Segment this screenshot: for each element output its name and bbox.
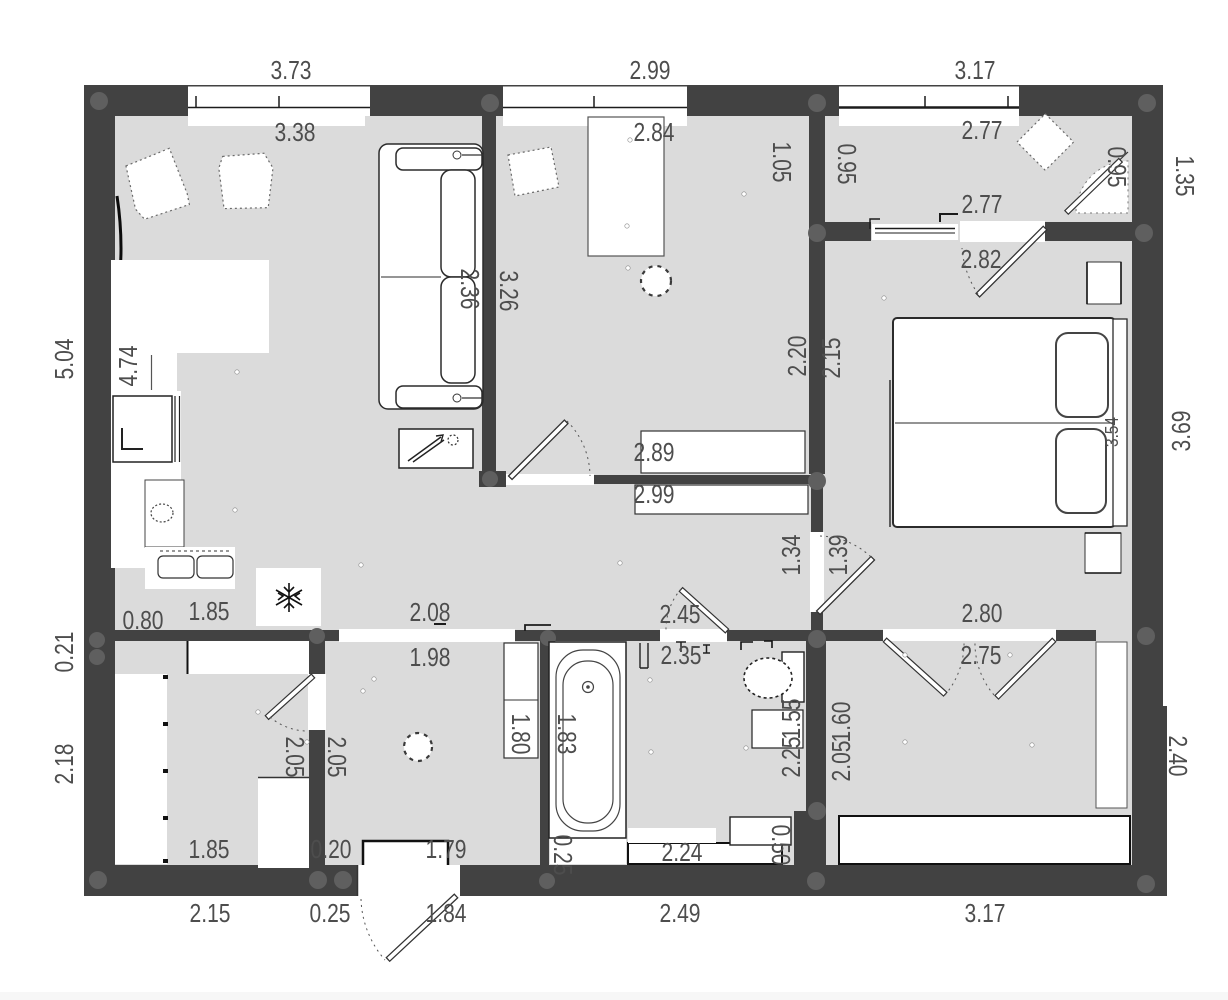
svg-text:1.83: 1.83 — [552, 714, 582, 755]
svg-text:2.84: 2.84 — [634, 117, 675, 147]
svg-text:2.05: 2.05 — [280, 737, 310, 778]
svg-text:2.24: 2.24 — [662, 837, 703, 867]
svg-text:3.54: 3.54 — [1102, 417, 1122, 447]
svg-text:4.74: 4.74 — [113, 346, 143, 387]
svg-text:1.34: 1.34 — [776, 535, 806, 576]
svg-text:2.18: 2.18 — [49, 744, 79, 785]
svg-text:0.95: 0.95 — [832, 144, 862, 185]
svg-text:2.05: 2.05 — [826, 741, 856, 782]
svg-text:1.98: 1.98 — [410, 642, 451, 672]
svg-text:3.17: 3.17 — [965, 898, 1006, 928]
svg-text:0.25: 0.25 — [548, 835, 578, 876]
svg-text:2.20: 2.20 — [782, 336, 812, 377]
svg-text:1.79: 1.79 — [426, 834, 467, 864]
svg-text:1.80: 1.80 — [506, 714, 536, 755]
svg-text:2.05: 2.05 — [322, 737, 352, 778]
svg-text:0.95: 0.95 — [1102, 147, 1132, 188]
svg-text:0.20: 0.20 — [311, 834, 352, 864]
svg-text:2.89: 2.89 — [634, 437, 675, 467]
svg-text:2.45: 2.45 — [660, 599, 701, 629]
svg-text:2.15: 2.15 — [816, 338, 846, 379]
svg-text:3.38: 3.38 — [275, 117, 316, 147]
svg-text:2.25: 2.25 — [776, 737, 806, 778]
svg-text:2.77: 2.77 — [962, 115, 1003, 145]
svg-text:1.60: 1.60 — [826, 702, 856, 743]
svg-text:2.99: 2.99 — [634, 479, 675, 509]
svg-text:1.84: 1.84 — [426, 898, 467, 928]
svg-text:2.08: 2.08 — [410, 597, 451, 627]
svg-text:2.40: 2.40 — [1163, 736, 1193, 777]
svg-text:3.26: 3.26 — [494, 271, 524, 312]
svg-text:2.82: 2.82 — [961, 244, 1002, 274]
svg-text:2.49: 2.49 — [660, 898, 701, 928]
svg-text:2.15: 2.15 — [190, 898, 231, 928]
svg-text:1.05: 1.05 — [767, 142, 797, 183]
svg-text:1.35: 1.35 — [1170, 156, 1200, 197]
svg-text:2.36: 2.36 — [455, 269, 485, 310]
svg-text:1.39: 1.39 — [823, 535, 853, 576]
svg-text:3.73: 3.73 — [271, 55, 312, 85]
svg-text:5.04: 5.04 — [49, 339, 79, 380]
svg-text:1.85: 1.85 — [189, 596, 230, 626]
svg-text:2.77: 2.77 — [962, 189, 1003, 219]
svg-text:1.85: 1.85 — [189, 834, 230, 864]
svg-text:3.17: 3.17 — [955, 55, 996, 85]
svg-text:3.69: 3.69 — [1166, 411, 1196, 452]
svg-text:0.80: 0.80 — [123, 605, 164, 635]
svg-text:1.55: 1.55 — [776, 699, 806, 740]
svg-text:2.80: 2.80 — [962, 598, 1003, 628]
svg-text:0.25: 0.25 — [310, 898, 351, 928]
svg-text:2.75: 2.75 — [961, 640, 1002, 670]
svg-text:0.50: 0.50 — [766, 825, 796, 866]
svg-text:0.21: 0.21 — [49, 632, 79, 673]
svg-text:2.99: 2.99 — [630, 55, 671, 85]
svg-text:2.35: 2.35 — [661, 640, 702, 670]
